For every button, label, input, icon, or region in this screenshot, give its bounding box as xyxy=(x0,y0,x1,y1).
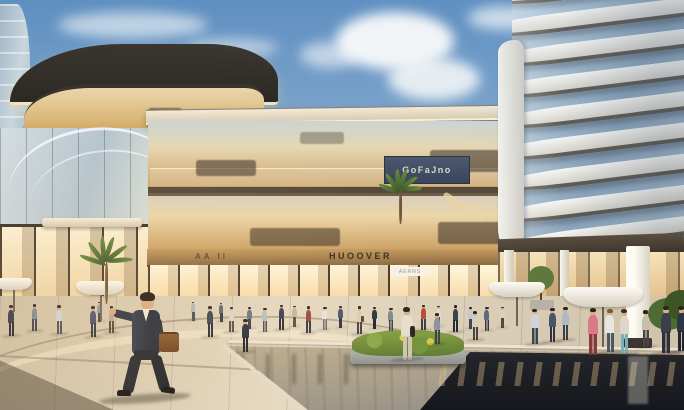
mall-plaza-rendering: GoFaJno AA II HUOOVER AERNS xyxy=(0,0,684,410)
man-hand xyxy=(109,308,116,315)
man-front-leg xyxy=(122,355,142,395)
man-shadow xyxy=(99,391,191,406)
foreground-man xyxy=(105,292,191,404)
man-briefcase xyxy=(159,332,179,352)
palm-tree xyxy=(375,173,426,224)
man-shoe xyxy=(117,390,131,396)
man-hair xyxy=(140,292,155,301)
palm-layer xyxy=(0,0,684,410)
